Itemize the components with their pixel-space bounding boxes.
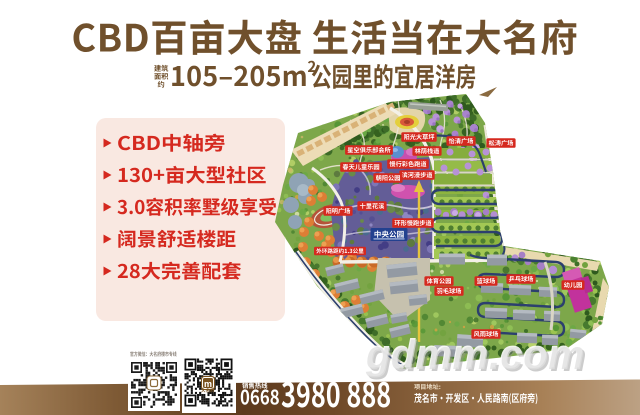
svg-text:gdmm.com: gdmm.com [365,332,585,378]
svg-text:m: m [204,379,212,389]
